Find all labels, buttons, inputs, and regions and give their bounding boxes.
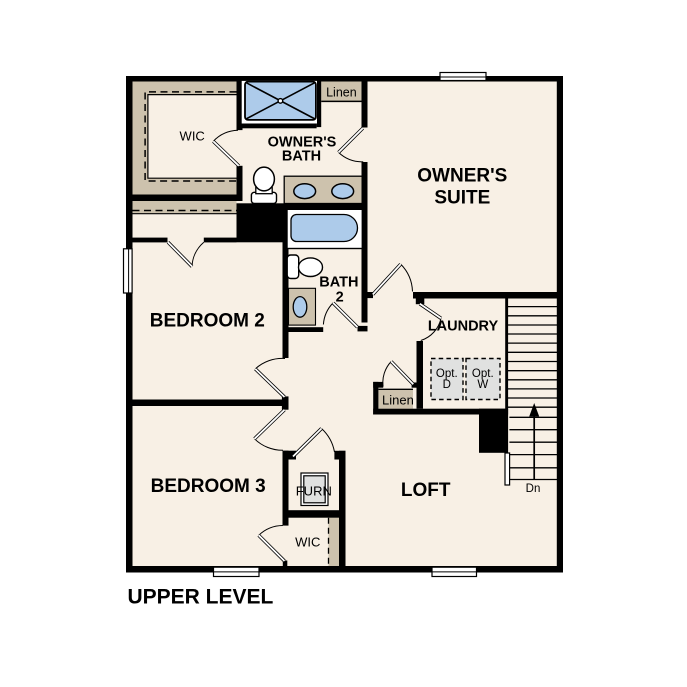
- svg-text:Dn: Dn: [526, 483, 541, 495]
- svg-text:BATH: BATH: [282, 149, 321, 165]
- svg-text:BEDROOM 3: BEDROOM 3: [151, 476, 266, 497]
- svg-text:LOFT: LOFT: [401, 480, 451, 501]
- svg-text:Linen: Linen: [382, 392, 414, 407]
- svg-text:LAUNDRY: LAUNDRY: [428, 319, 499, 335]
- svg-text:WIC: WIC: [180, 129, 205, 144]
- svg-text:UPPER LEVEL: UPPER LEVEL: [128, 586, 274, 609]
- svg-text:2: 2: [336, 290, 344, 306]
- svg-text:D: D: [443, 379, 451, 391]
- svg-text:FURN: FURN: [296, 483, 332, 498]
- svg-text:Linen: Linen: [326, 86, 357, 100]
- svg-text:WIC: WIC: [295, 534, 320, 549]
- svg-text:SUITE: SUITE: [434, 188, 490, 209]
- svg-text:BEDROOM 2: BEDROOM 2: [150, 311, 265, 332]
- svg-text:W: W: [477, 379, 488, 391]
- svg-text:BATH: BATH: [319, 275, 358, 291]
- svg-text:OWNER'S: OWNER'S: [417, 165, 507, 186]
